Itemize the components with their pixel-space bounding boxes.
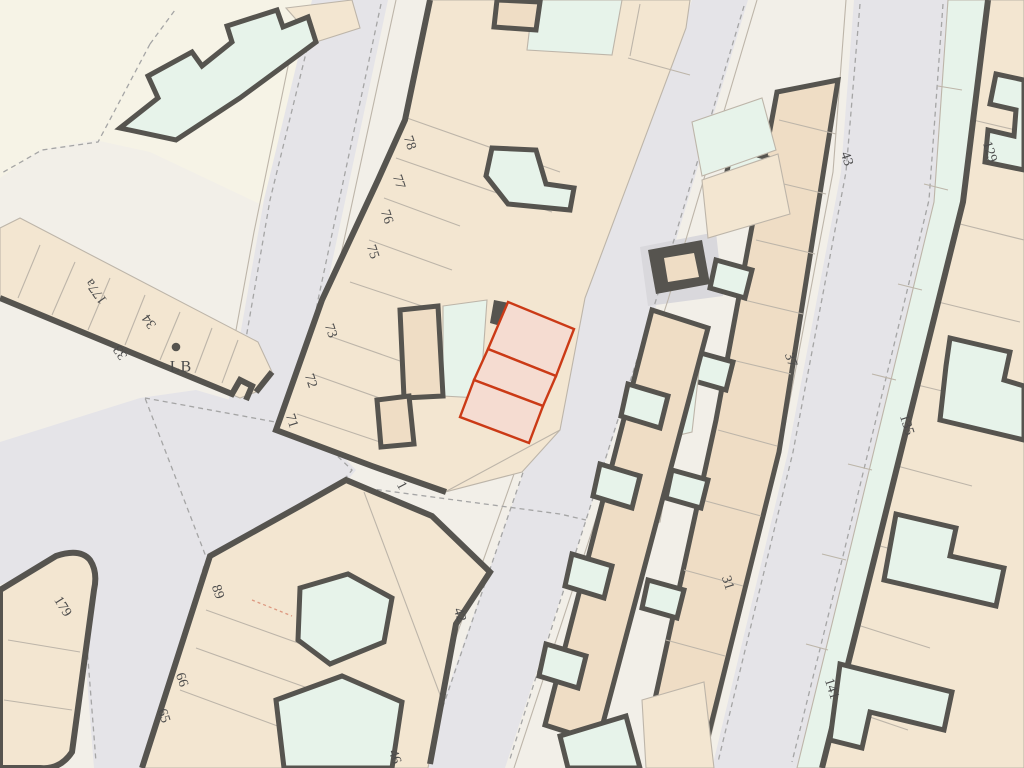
ring-building-court xyxy=(664,253,699,282)
rear-extension xyxy=(642,580,684,618)
map-label-LB: LB xyxy=(170,359,192,376)
rear-courtyard-building xyxy=(940,338,1024,440)
rear-extension xyxy=(710,260,752,298)
map-canvas[interactable]: 787776757372711177a3433LB179896665464231… xyxy=(0,0,1024,768)
building xyxy=(494,0,540,30)
building xyxy=(377,396,414,447)
letter-box-dot xyxy=(172,343,181,352)
map-svg: 787776757372711177a3433LB179896665464231… xyxy=(0,0,1024,768)
point-features xyxy=(172,343,181,352)
rear-extension xyxy=(666,470,708,508)
building xyxy=(400,306,443,398)
